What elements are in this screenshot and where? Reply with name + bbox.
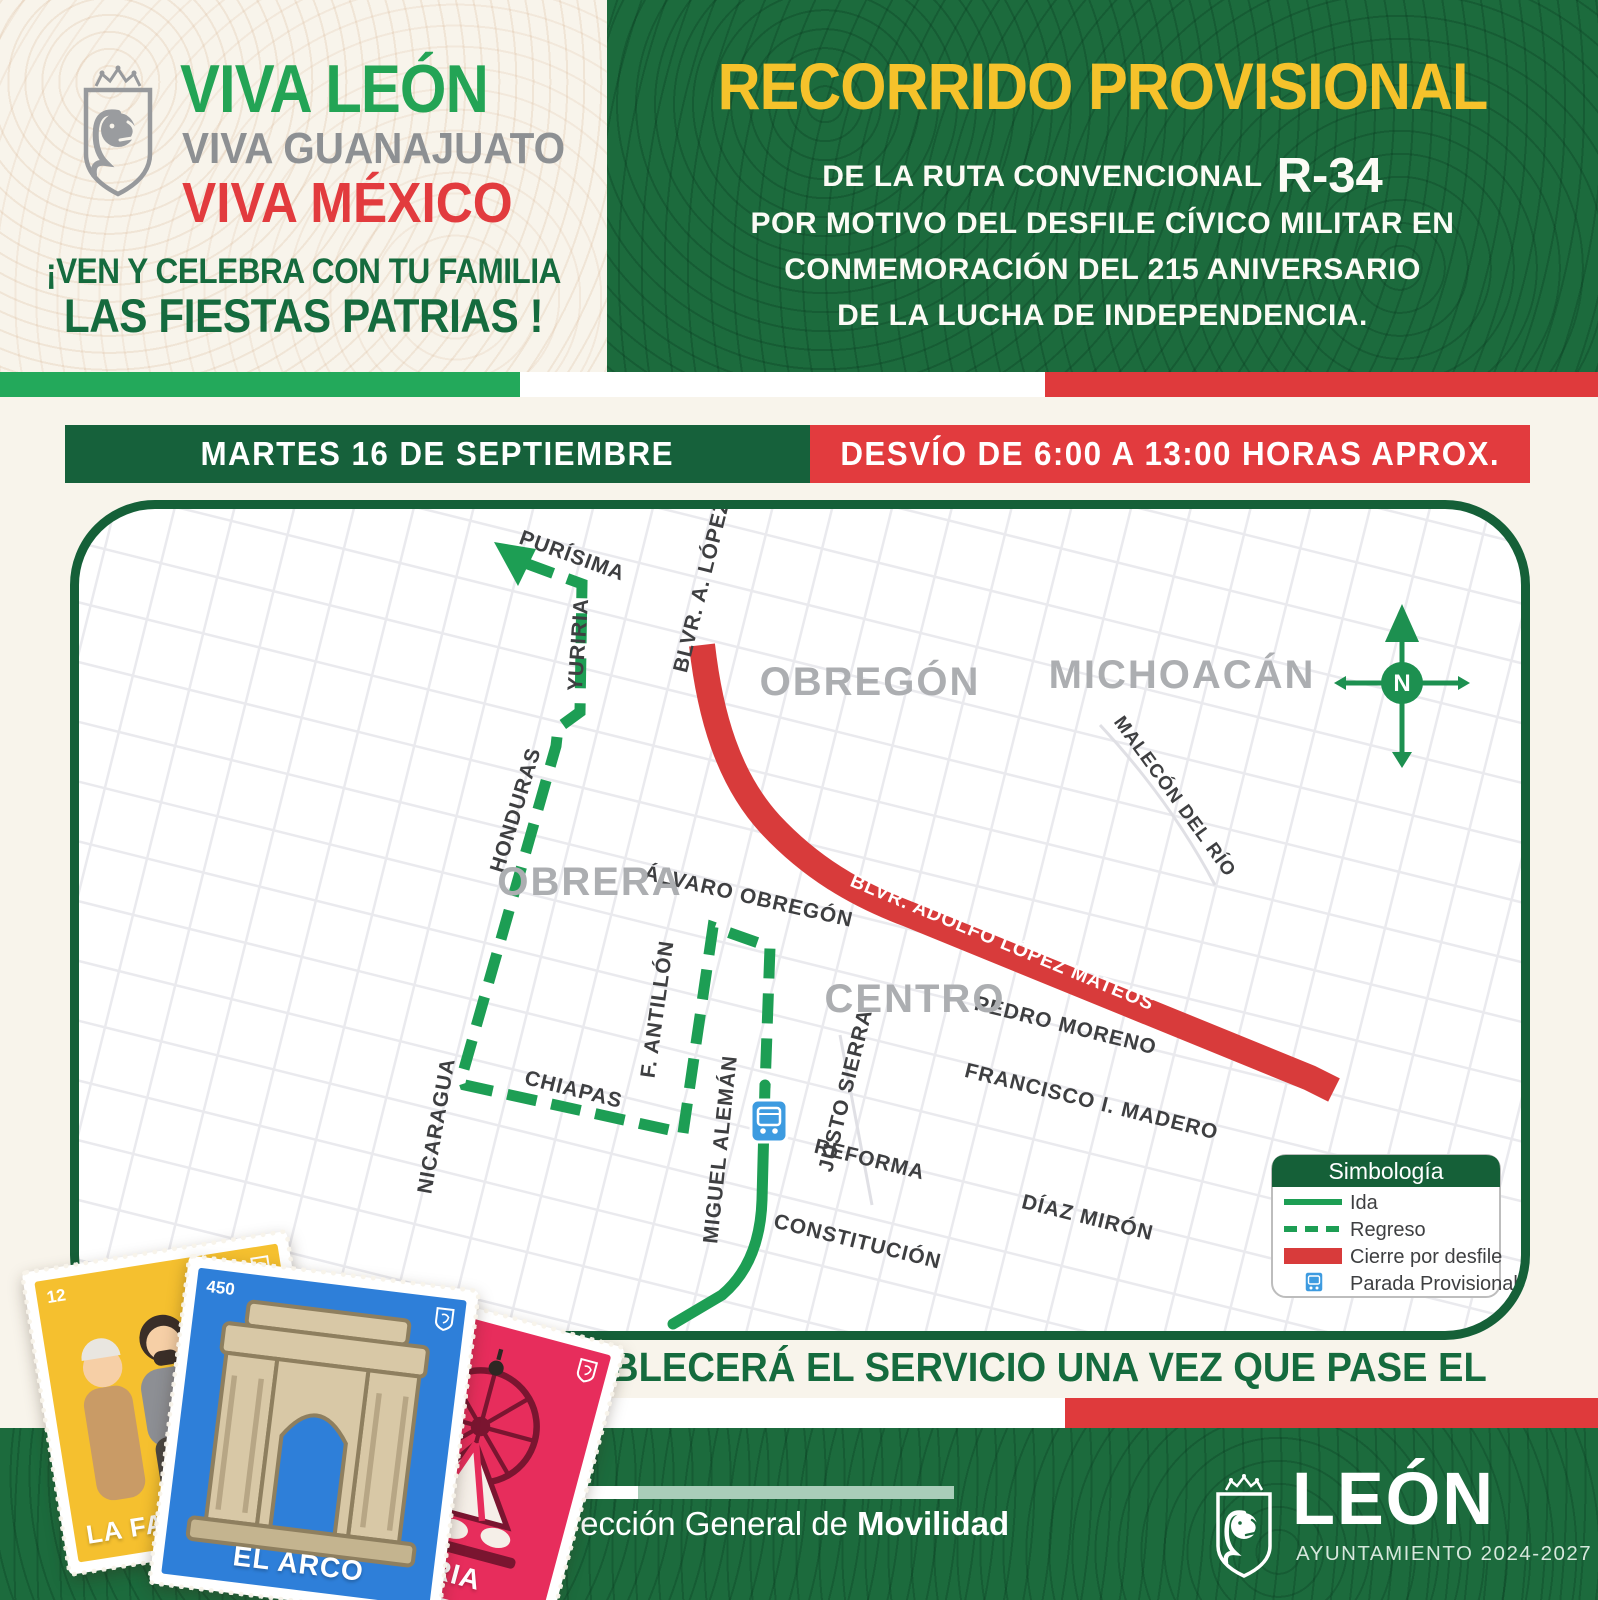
dept-name: Dirección General deMovilidad — [538, 1505, 1009, 1543]
leon-shield-logo-icon — [66, 56, 170, 202]
street-label-miguel-aleman: MIGUEL ALEMÁN — [699, 1054, 742, 1245]
viva-guanajuato-title: VIVA GUANAJUATO — [182, 124, 565, 174]
stamp-shield-icon — [432, 1305, 457, 1333]
dept-name-prefix: Dirección General de — [538, 1505, 848, 1542]
route-map-svg: BLVR. ADOLFO LÓPEZ MATEOS PURÍSIMA YURIR… — [70, 500, 1530, 1340]
route-code: R-34 — [1277, 149, 1383, 203]
route-line-3: CONMEMORACIÓN DEL 215 ANIVERSARIO — [607, 253, 1598, 287]
provisional-stop-icon — [751, 1100, 787, 1142]
street-label-reforma: REFORMA — [812, 1135, 927, 1185]
street-label-f-antillon: F. ANTILLÓN — [636, 939, 679, 1080]
legend-stop-icon — [1305, 1272, 1323, 1292]
leon-logo-text: LEÓN — [1292, 1456, 1495, 1541]
date-banner: MARTES 16 DE SEPTIEMBRE — [65, 425, 810, 483]
route-line-1: DE LA RUTA CONVENCIONALR-34 — [607, 148, 1598, 204]
compass-icon: N — [1334, 604, 1470, 768]
area-label-michoacan: MICHOACÁN — [1049, 652, 1316, 697]
detour-banner-text: DESVÍO DE 6:00 A 13:00 HORAS APROX. — [840, 435, 1500, 473]
tricolor-top-green — [0, 372, 520, 397]
route-map: BLVR. ADOLFO LÓPEZ MATEOS PURÍSIMA YURIR… — [70, 500, 1530, 1340]
street-label-honduras: HONDURAS — [486, 745, 546, 875]
date-banner-text: MARTES 16 DE SEPTIEMBRE — [201, 435, 675, 473]
poster: VIVA LEÓN VIVA GUANAJUATO VIVA MÉXICO ¡V… — [0, 0, 1598, 1600]
tricolor-top-red — [1045, 372, 1598, 397]
tricolor-bottom-white — [535, 1398, 1065, 1428]
stamp-number: 450 — [205, 1277, 236, 1300]
route-line-4: DE LA LUCHA DE INDEPENDENCIA. — [607, 299, 1598, 333]
viva-mexico-title: VIVA MÉXICO — [182, 170, 513, 236]
area-label-obrera: OBRERA — [497, 860, 682, 904]
legend-parada-label: Parada Provisional — [1350, 1273, 1518, 1295]
tagline-line2: LAS FIESTAS PATRIAS ! — [30, 288, 576, 343]
street-label-malecon: MALECÓN DEL RÍO — [1109, 712, 1240, 881]
route-line-2: POR MOTIVO DEL DESFILE CÍVICO MILITAR EN — [607, 207, 1598, 241]
area-label-obregon: OBREGÓN — [760, 658, 981, 704]
stamp-el-arco: 450 EL ARCO — [149, 1255, 479, 1600]
stamp-number: 12 — [45, 1285, 67, 1308]
recorrido-title: RECORRIDO PROVISIONAL — [657, 48, 1549, 124]
leon-footer-shield-icon — [1202, 1468, 1286, 1580]
street-label-diaz-miron: DÍAZ MIRÓN — [1019, 1189, 1156, 1245]
legend-cierre-label: Cierre por desfile — [1350, 1246, 1502, 1268]
legend-title: Simbología — [1328, 1158, 1443, 1184]
legend: Simbología Ida Regreso Cierre por desfil… — [1272, 1155, 1518, 1297]
compass-n-label: N — [1393, 670, 1410, 697]
legend-ida-label: Ida — [1350, 1192, 1379, 1214]
tricolor-top-white — [520, 372, 1045, 397]
dept-name-bold: Movilidad — [857, 1505, 1009, 1542]
dept-accent-bar — [538, 1486, 954, 1499]
header-right-panel: RECORRIDO PROVISIONAL DE LA RUTA CONVENC… — [607, 0, 1598, 372]
tagline-line1: ¡VEN Y CELEBRA CON TU FAMILIA — [30, 252, 576, 292]
header-left-panel: VIVA LEÓN VIVA GUANAJUATO VIVA MÉXICO ¡V… — [0, 0, 607, 372]
legend-regreso-label: Regreso — [1350, 1219, 1426, 1241]
leon-logo-subtitle: AYUNTAMIENTO 2024-2027 — [1296, 1542, 1592, 1566]
detour-banner: DESVÍO DE 6:00 A 13:00 HORAS APROX. — [810, 425, 1530, 483]
tricolor-bottom-red — [1065, 1398, 1598, 1428]
area-label-centro: CENTRO — [825, 977, 1006, 1021]
viva-leon-title: VIVA LEÓN — [180, 50, 488, 128]
street-label-constitucion: CONSTITUCIÓN — [771, 1209, 944, 1274]
route-line-1-text: DE LA RUTA CONVENCIONAL — [822, 160, 1262, 193]
